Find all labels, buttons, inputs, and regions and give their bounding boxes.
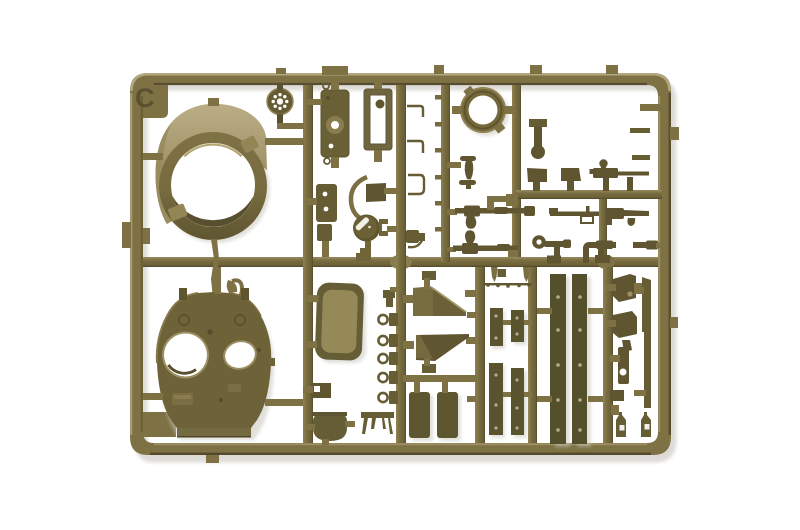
svg-text:C: C — [135, 83, 155, 113]
